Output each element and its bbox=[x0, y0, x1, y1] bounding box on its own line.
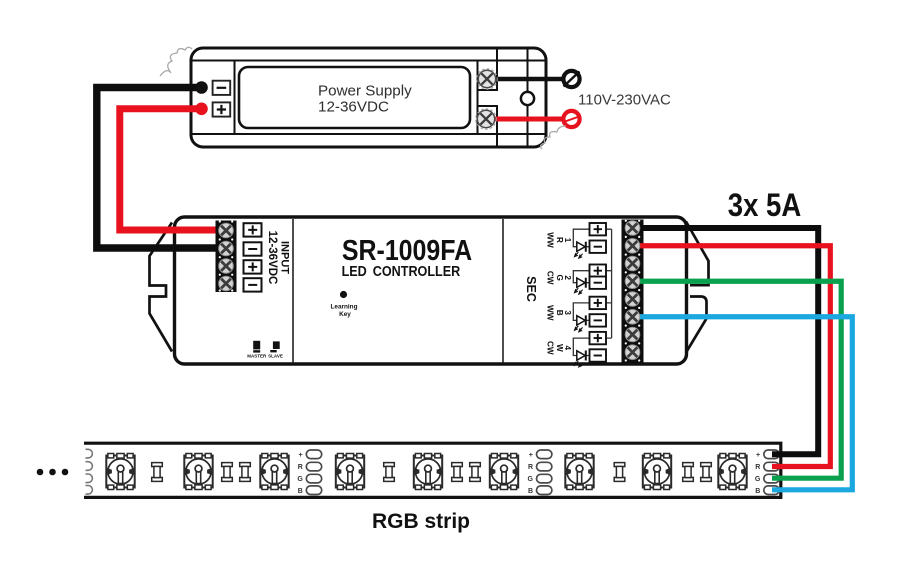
svg-text:3x 5A: 3x 5A bbox=[728, 188, 801, 223]
svg-text:12-36VDC: 12-36VDC bbox=[266, 231, 278, 285]
svg-text:R: R bbox=[755, 464, 760, 471]
svg-text:SLAVE: SLAVE bbox=[268, 354, 283, 359]
svg-text:+: + bbox=[529, 450, 534, 459]
svg-text:+: + bbox=[298, 450, 303, 459]
svg-text:W: W bbox=[555, 344, 564, 352]
svg-text:R: R bbox=[528, 464, 533, 471]
svg-text:Power Supply: Power Supply bbox=[318, 83, 412, 100]
svg-text:G: G bbox=[528, 476, 534, 483]
svg-text:+: + bbox=[756, 450, 761, 459]
svg-text:B: B bbox=[555, 310, 564, 316]
svg-text:RGB strip: RGB strip bbox=[372, 510, 470, 533]
svg-text:WW: WW bbox=[546, 232, 555, 248]
svg-text:B: B bbox=[528, 488, 533, 495]
svg-text:WW: WW bbox=[546, 305, 555, 321]
svg-text:R: R bbox=[555, 237, 564, 243]
svg-text:2: 2 bbox=[563, 275, 572, 280]
svg-text:G: G bbox=[297, 476, 303, 483]
svg-text:R: R bbox=[298, 464, 303, 471]
svg-text:CW: CW bbox=[546, 341, 555, 355]
svg-text:INPUT: INPUT bbox=[279, 241, 291, 274]
svg-text:3: 3 bbox=[563, 310, 572, 315]
svg-text:LED CONTROLLER: LED CONTROLLER bbox=[342, 262, 461, 279]
svg-text:B: B bbox=[755, 488, 760, 495]
svg-text:110V-230VAC: 110V-230VAC bbox=[578, 92, 671, 109]
svg-text:B: B bbox=[298, 488, 303, 495]
svg-text:CW: CW bbox=[546, 271, 555, 285]
svg-text:12-36VDC: 12-36VDC bbox=[318, 99, 389, 116]
svg-text:Learning: Learning bbox=[331, 304, 358, 311]
svg-text:MASTER: MASTER bbox=[247, 354, 267, 359]
svg-text:G: G bbox=[755, 476, 761, 483]
svg-text:1: 1 bbox=[563, 238, 572, 243]
svg-text:SEC: SEC bbox=[524, 276, 538, 302]
svg-text:G: G bbox=[555, 275, 564, 281]
svg-text:Key: Key bbox=[339, 311, 351, 318]
svg-text:4: 4 bbox=[563, 346, 572, 351]
